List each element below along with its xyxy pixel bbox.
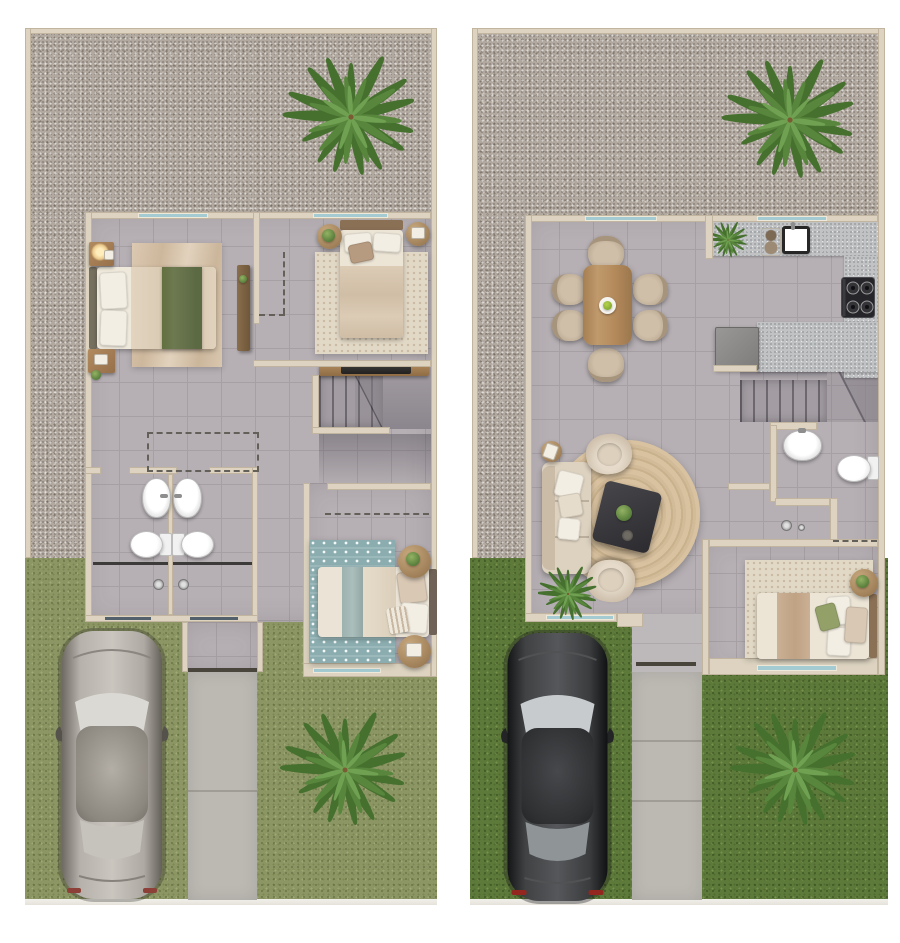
dining-chair — [633, 310, 668, 341]
armchair-seat — [598, 568, 624, 592]
palm-tree — [720, 50, 860, 190]
bed-bedroom-2 — [340, 220, 403, 338]
gravel-strip — [475, 215, 525, 558]
stair-shadow — [740, 372, 827, 380]
window-bath-left — [105, 617, 151, 620]
ground-floor-panel — [470, 28, 888, 905]
toilet-bowl — [837, 455, 871, 482]
walkway — [632, 672, 702, 900]
entry-door — [636, 662, 696, 666]
faucet — [798, 428, 806, 433]
teal-runner — [342, 567, 363, 637]
wall-entry-corner — [617, 613, 643, 627]
palm-tree — [281, 47, 421, 187]
nightstand-decor — [94, 354, 108, 365]
palm-tree — [725, 700, 865, 840]
headboard — [429, 569, 437, 635]
wall-bedroom-divider — [253, 212, 260, 324]
striped-pillow — [386, 605, 410, 634]
window-dining — [585, 216, 657, 221]
walkway — [188, 672, 257, 900]
wall-bath-left — [770, 425, 777, 502]
duvet — [777, 593, 810, 659]
kitchen-faucet — [791, 222, 795, 230]
dashed-under-stair-closet — [833, 540, 877, 544]
wall-kitchen-low — [713, 365, 757, 372]
wall-bath-door — [728, 483, 770, 490]
nightstand-decor — [104, 250, 114, 260]
bed-bedroom-3 — [318, 567, 437, 637]
wall-vestibule-right — [257, 622, 263, 672]
plot-wall-left — [472, 28, 478, 558]
pillow — [844, 606, 868, 643]
coffee-set — [761, 228, 781, 256]
refrigerator — [715, 327, 759, 370]
kitchen-sink — [782, 226, 810, 254]
wall-bath-top — [770, 422, 817, 430]
floor-plans-canvas — [0, 0, 900, 943]
headboard — [89, 267, 97, 349]
wall-vestibule-left — [182, 622, 188, 672]
wall-bath-right — [252, 467, 258, 622]
stair-winder — [355, 375, 383, 427]
shower-glass — [173, 562, 252, 565]
headboard — [340, 220, 403, 230]
sofa — [542, 462, 591, 574]
floor-vestibule — [182, 622, 263, 672]
shower-head — [781, 520, 792, 531]
upper-floor-panel — [25, 28, 437, 905]
closet-outline-hall — [147, 432, 259, 472]
side-table-plant — [856, 575, 869, 588]
entry-door — [188, 668, 257, 672]
house-wall-left — [525, 215, 532, 622]
wall-bath-bottom — [775, 498, 830, 506]
bathroom-sink — [173, 478, 202, 518]
shower-glass — [93, 562, 168, 565]
staircase — [740, 380, 827, 422]
centerpiece-greens — [603, 301, 612, 310]
window-bedroom — [757, 665, 837, 671]
pillow — [99, 271, 128, 309]
bathroom-sink — [142, 478, 171, 518]
faucet — [174, 494, 182, 498]
dining-chair — [633, 274, 668, 305]
kitchen-counter-peninsula — [757, 322, 878, 372]
side-table-plant — [322, 229, 335, 242]
walkway-joint — [632, 740, 702, 742]
window-bedroom-3 — [313, 668, 381, 673]
dining-chair — [552, 310, 587, 341]
coffee-table-plant — [616, 505, 632, 521]
gas-stove — [841, 277, 875, 318]
green-throw — [162, 267, 202, 349]
car-black-top-view — [498, 628, 617, 906]
side-table-decor — [406, 643, 422, 657]
shower-head — [178, 579, 189, 590]
bed-bedroom — [757, 593, 877, 659]
toilet-bowl — [181, 531, 214, 558]
wall-bedroom3-top — [327, 483, 431, 490]
wall-shower-divider — [830, 498, 838, 545]
pillow — [99, 310, 127, 347]
stair-void-shadow — [319, 434, 431, 483]
shower-head — [153, 579, 164, 590]
pillow — [372, 232, 401, 253]
gravel-strip — [28, 215, 85, 558]
window-bath-right — [190, 617, 238, 620]
wardrobe-plant — [239, 275, 247, 283]
dining-chair — [588, 348, 624, 382]
side-table-plant — [406, 552, 420, 566]
window-bedroom-1 — [138, 213, 208, 218]
coffee-table-tray — [622, 530, 633, 541]
sofa-pillow — [557, 492, 584, 519]
wall-bedroom3-left — [303, 483, 310, 677]
walkway-joint — [632, 800, 702, 802]
bed-bedroom-1 — [89, 267, 216, 349]
toilet-bowl — [130, 531, 163, 558]
walkway-joint — [188, 790, 257, 792]
plot-wall-right — [878, 28, 885, 675]
plot-wall-top — [472, 28, 884, 34]
plot-wall-top — [25, 28, 437, 34]
wall-bedroom-left — [702, 539, 709, 675]
window-bedroom-2 — [313, 213, 388, 218]
duvet — [340, 266, 403, 338]
stair-landing — [383, 367, 431, 429]
faucet — [160, 494, 168, 498]
palm-tree — [275, 700, 415, 840]
counter-plant — [708, 220, 748, 260]
closet-outline-bedroom2-v — [283, 252, 287, 314]
plot-wall-left — [25, 28, 31, 558]
wall-stair-frame — [312, 375, 319, 434]
sofa-pillow — [557, 517, 581, 541]
side-table-decor — [411, 227, 425, 239]
wall-stair-rail — [312, 427, 390, 434]
roof — [76, 726, 148, 822]
dining-chair — [552, 274, 587, 305]
headboard — [869, 594, 877, 658]
console-tray — [341, 366, 411, 374]
small-plant — [91, 370, 101, 380]
bathroom-sink — [783, 430, 822, 461]
wall-bath-top-a — [85, 467, 101, 474]
wall-kitchen-divider — [705, 215, 713, 259]
closet-outline-bedroom2-h — [259, 314, 285, 318]
roof — [522, 728, 594, 824]
dashed-line-bedroom3 — [325, 513, 429, 517]
wall-bedroom2-bottom — [253, 360, 431, 367]
car-silver-top-view — [53, 626, 171, 904]
floor-plant — [538, 564, 598, 624]
sofa-back — [542, 466, 555, 570]
shower-drain — [798, 524, 805, 531]
window-kitchen — [757, 216, 827, 221]
